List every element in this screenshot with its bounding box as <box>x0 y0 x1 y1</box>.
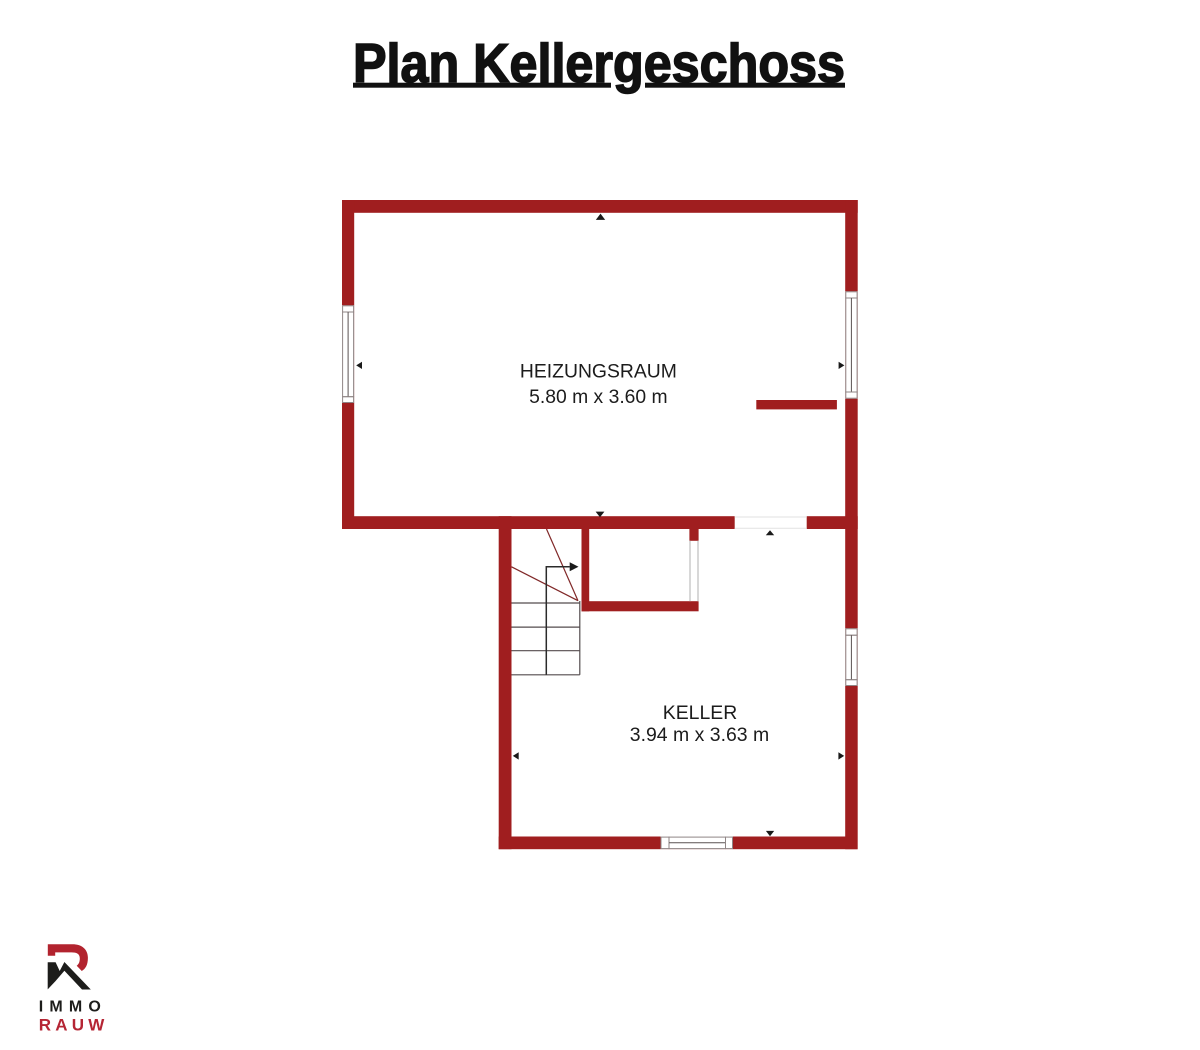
svg-text:5.80 m x 3.60 m: 5.80 m x 3.60 m <box>529 386 668 408</box>
svg-text:RAUW: RAUW <box>39 1015 109 1034</box>
svg-text:KELLER: KELLER <box>663 702 738 724</box>
svg-text:3.94 m x 3.63 m: 3.94 m x 3.63 m <box>630 724 770 746</box>
svg-text:IMMO: IMMO <box>39 999 106 1016</box>
svg-text:HEIZUNGSRAUM: HEIZUNGSRAUM <box>520 360 677 382</box>
